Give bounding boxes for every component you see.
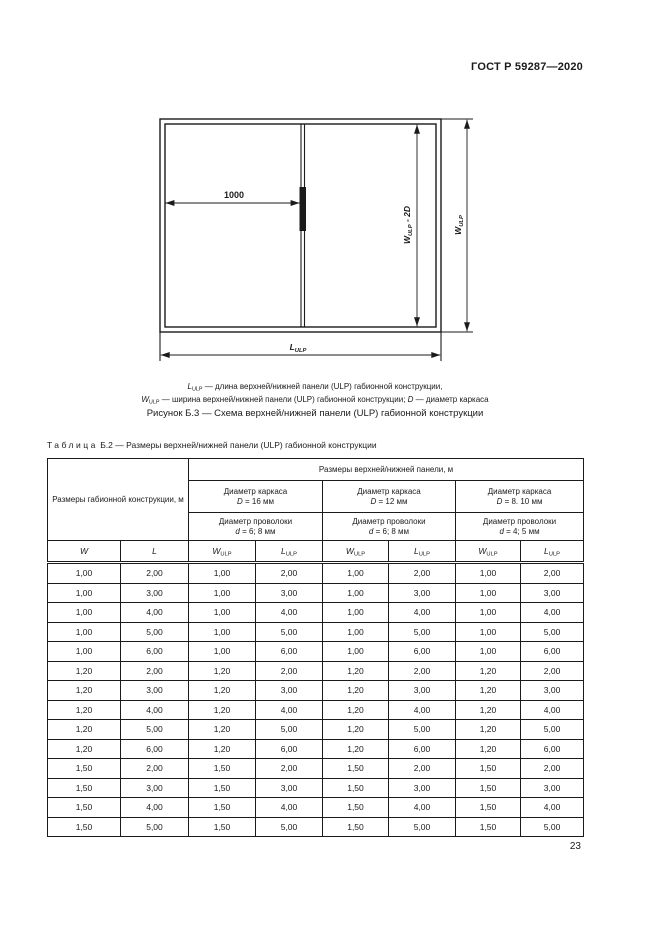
cell: 1,20 <box>323 700 389 720</box>
cell: 6,00 <box>256 739 323 759</box>
cell: 6,00 <box>521 739 584 759</box>
cell: 5,00 <box>121 817 189 837</box>
col-header-frame-d16: Диаметр каркаса D = 16 мм <box>189 481 323 513</box>
cell: 4,00 <box>121 603 189 623</box>
table-row: 1,004,001,004,001,004,001,004,00 <box>48 603 584 623</box>
cell: 1,00 <box>189 603 256 623</box>
cell: 1,00 <box>48 603 121 623</box>
cell: 5,00 <box>521 817 584 837</box>
table-row: 1,005,001,005,001,005,001,005,00 <box>48 622 584 642</box>
cell: 1,00 <box>189 622 256 642</box>
cell: 1,00 <box>189 642 256 662</box>
cell: 3,00 <box>256 681 323 701</box>
cell: 1,50 <box>189 778 256 798</box>
cell: 1,20 <box>48 720 121 740</box>
cell: 1,50 <box>323 817 389 837</box>
cell: 1,20 <box>189 681 256 701</box>
cell: 4,00 <box>121 700 189 720</box>
cell: 1,20 <box>48 661 121 681</box>
cell: 2,00 <box>256 759 323 779</box>
dimensions-table: Размеры габионной конструкции, м Размеры… <box>47 458 584 837</box>
cell: 1,20 <box>48 681 121 701</box>
figure-title: Рисунок Б.3 — Схема верхней/нижней панел… <box>47 408 583 419</box>
table-row: 1,504,001,504,001,504,001,504,00 <box>48 798 584 818</box>
table-row: 1,503,001,503,001,503,001,503,00 <box>48 778 584 798</box>
cell: 1,20 <box>189 661 256 681</box>
cell: 1,20 <box>456 681 521 701</box>
cell: 5,00 <box>121 720 189 740</box>
cell: 1,20 <box>323 661 389 681</box>
dimension-label-wulp: WULP <box>453 215 465 235</box>
cell: 1,20 <box>323 720 389 740</box>
table-row: 1,205,001,205,001,205,001,205,00 <box>48 720 584 740</box>
cell: 5,00 <box>256 622 323 642</box>
cell: 1,00 <box>323 583 389 603</box>
cell: 4,00 <box>121 798 189 818</box>
cell: 5,00 <box>389 622 456 642</box>
cell: 3,00 <box>256 778 323 798</box>
cell: 1,00 <box>189 583 256 603</box>
cell: 2,00 <box>121 759 189 779</box>
document-number: ГОСТ Р 59287—2020 <box>0 61 583 73</box>
cell: 1,00 <box>48 583 121 603</box>
col-header-panel-size: Размеры верхней/нижней панели, м <box>189 459 584 481</box>
cell: 1,00 <box>323 603 389 623</box>
cell: 5,00 <box>389 720 456 740</box>
cell: 1,00 <box>48 642 121 662</box>
cell: 5,00 <box>389 817 456 837</box>
cell: 2,00 <box>521 661 584 681</box>
cell: 1,20 <box>323 739 389 759</box>
col-header-gabion-size: Размеры габионной конструкции, м <box>48 459 189 541</box>
table-row: 1,006,001,006,001,006,001,006,00 <box>48 642 584 662</box>
table-title: Таблица Б.2 — Размеры верхней/нижней пан… <box>47 440 377 450</box>
table-row: 1,003,001,003,001,003,001,003,00 <box>48 583 584 603</box>
cell: 1,00 <box>48 622 121 642</box>
w-symbol: W <box>141 395 149 404</box>
cell: 1,50 <box>323 778 389 798</box>
document-page: ГОСТ Р 59287—2020 1000 WULP - 2D WULP LU… <box>0 0 661 935</box>
cell: 5,00 <box>521 622 584 642</box>
cell: 6,00 <box>121 739 189 759</box>
cell: 2,00 <box>256 661 323 681</box>
cell: 3,00 <box>389 778 456 798</box>
cell: 6,00 <box>389 739 456 759</box>
cell: 1,20 <box>456 739 521 759</box>
cell: 3,00 <box>389 583 456 603</box>
cell: 5,00 <box>521 720 584 740</box>
col-header-lulp-3: LULP <box>521 541 584 563</box>
cell: 1,50 <box>456 817 521 837</box>
cell: 6,00 <box>256 642 323 662</box>
cell: 1,00 <box>456 563 521 584</box>
table-row: 1,002,001,002,001,002,001,002,00 <box>48 563 584 584</box>
col-header-lulp-1: LULP <box>256 541 323 563</box>
cell: 1,00 <box>189 563 256 584</box>
cell: 1,00 <box>456 583 521 603</box>
cell: 4,00 <box>256 700 323 720</box>
cell: 2,00 <box>389 563 456 584</box>
figure-diagram: 1000 WULP - 2D WULP LULP <box>146 103 494 371</box>
cell: 1,00 <box>456 622 521 642</box>
col-header-wulp-2: WULP <box>323 541 389 563</box>
table-row: 1,206,001,206,001,206,001,206,00 <box>48 739 584 759</box>
cell: 1,00 <box>323 642 389 662</box>
cell: 3,00 <box>521 583 584 603</box>
cell: 5,00 <box>256 817 323 837</box>
col-header-wulp-3: WULP <box>456 541 521 563</box>
dimension-label-1000: 1000 <box>224 190 244 200</box>
cell: 3,00 <box>521 778 584 798</box>
table-row: 1,203,001,203,001,203,001,203,00 <box>48 681 584 701</box>
cell: 2,00 <box>121 661 189 681</box>
cell: 1,20 <box>189 720 256 740</box>
cell: 1,50 <box>323 759 389 779</box>
table-row: 1,505,001,505,001,505,001,505,00 <box>48 817 584 837</box>
table-row: 1,204,001,204,001,204,001,204,00 <box>48 700 584 720</box>
cell: 1,00 <box>48 563 121 584</box>
cell: 5,00 <box>256 720 323 740</box>
cell: 1,00 <box>456 642 521 662</box>
figure-legend: LULP — длина верхней/нижней панели (ULP)… <box>37 381 593 406</box>
cell: 6,00 <box>389 642 456 662</box>
cell: 6,00 <box>521 642 584 662</box>
cell: 1,20 <box>48 739 121 759</box>
cell: 1,20 <box>48 700 121 720</box>
cell: 6,00 <box>121 642 189 662</box>
dimension-label-lulp: LULP <box>290 342 307 354</box>
cell: 1,20 <box>456 720 521 740</box>
cell: 1,50 <box>456 778 521 798</box>
col-header-wire-d4-5: Диаметр проволоки d = 4; 5 мм <box>456 513 584 541</box>
table-body: 1,002,001,002,001,002,001,002,001,003,00… <box>48 563 584 837</box>
cell: 3,00 <box>121 681 189 701</box>
cell: 5,00 <box>121 622 189 642</box>
cell: 1,50 <box>323 798 389 818</box>
figure-legend-line1: LULP — длина верхней/нижней панели (ULP)… <box>37 381 593 394</box>
cell: 2,00 <box>521 563 584 584</box>
cell: 3,00 <box>256 583 323 603</box>
cell: 3,00 <box>389 681 456 701</box>
cell: 4,00 <box>521 603 584 623</box>
cell: 2,00 <box>389 661 456 681</box>
page-number: 23 <box>0 841 581 852</box>
cell: 4,00 <box>521 700 584 720</box>
cell: 1,20 <box>189 700 256 720</box>
col-header-frame-d12: Диаметр каркаса D = 12 мм <box>323 481 456 513</box>
col-header-frame-d8-10: Диаметр каркаса D = 8. 10 мм <box>456 481 584 513</box>
cell: 4,00 <box>521 798 584 818</box>
cell: 4,00 <box>256 798 323 818</box>
cell: 1,50 <box>189 798 256 818</box>
cell: 1,50 <box>48 798 121 818</box>
table-row: 1,202,001,202,001,202,001,202,00 <box>48 661 584 681</box>
cell: 2,00 <box>521 759 584 779</box>
cell: 4,00 <box>389 700 456 720</box>
cell: 1,50 <box>189 817 256 837</box>
cell: 3,00 <box>521 681 584 701</box>
cell: 1,50 <box>456 798 521 818</box>
col-header-wulp-1: WULP <box>189 541 256 563</box>
col-header-w: W <box>48 541 121 563</box>
col-header-wire-d6-8b: Диаметр проволоки d = 6; 8 мм <box>323 513 456 541</box>
cell: 1,20 <box>189 739 256 759</box>
cell: 1,50 <box>456 759 521 779</box>
cell: 4,00 <box>256 603 323 623</box>
figure-legend-line2: WULP — ширина верхней/нижней панели (ULP… <box>37 394 593 407</box>
cell: 3,00 <box>121 778 189 798</box>
cell: 3,00 <box>121 583 189 603</box>
col-header-l: L <box>121 541 189 563</box>
cell: 2,00 <box>121 563 189 584</box>
cell: 2,00 <box>389 759 456 779</box>
col-header-wire-d6-8: Диаметр проволоки d = 6; 8 мм <box>189 513 323 541</box>
cell: 1,00 <box>323 563 389 584</box>
cell: 1,00 <box>456 603 521 623</box>
cell: 4,00 <box>389 603 456 623</box>
cell: 1,50 <box>48 778 121 798</box>
cell: 1,20 <box>323 681 389 701</box>
divider-weld-mark <box>300 187 307 231</box>
cell: 1,00 <box>323 622 389 642</box>
cell: 1,50 <box>48 759 121 779</box>
table-row: 1,502,001,502,001,502,001,502,00 <box>48 759 584 779</box>
cell: 4,00 <box>389 798 456 818</box>
cell: 2,00 <box>256 563 323 584</box>
col-header-lulp-2: LULP <box>389 541 456 563</box>
cell: 1,20 <box>456 700 521 720</box>
cell: 1,50 <box>48 817 121 837</box>
cell: 1,50 <box>189 759 256 779</box>
cell: 1,20 <box>456 661 521 681</box>
dimension-label-wulp-2d: WULP - 2D <box>402 206 414 244</box>
